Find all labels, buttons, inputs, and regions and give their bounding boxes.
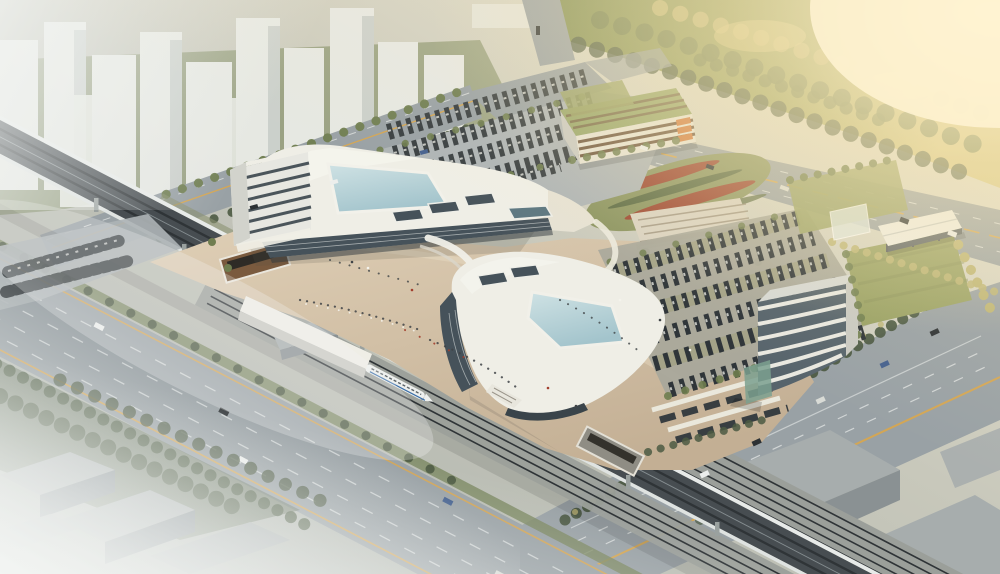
aerial-rendering-transit-hub [0, 0, 1000, 574]
atmosphere [0, 0, 1000, 574]
sun-glow [0, 0, 1000, 574]
rendering-canvas [0, 0, 1000, 574]
